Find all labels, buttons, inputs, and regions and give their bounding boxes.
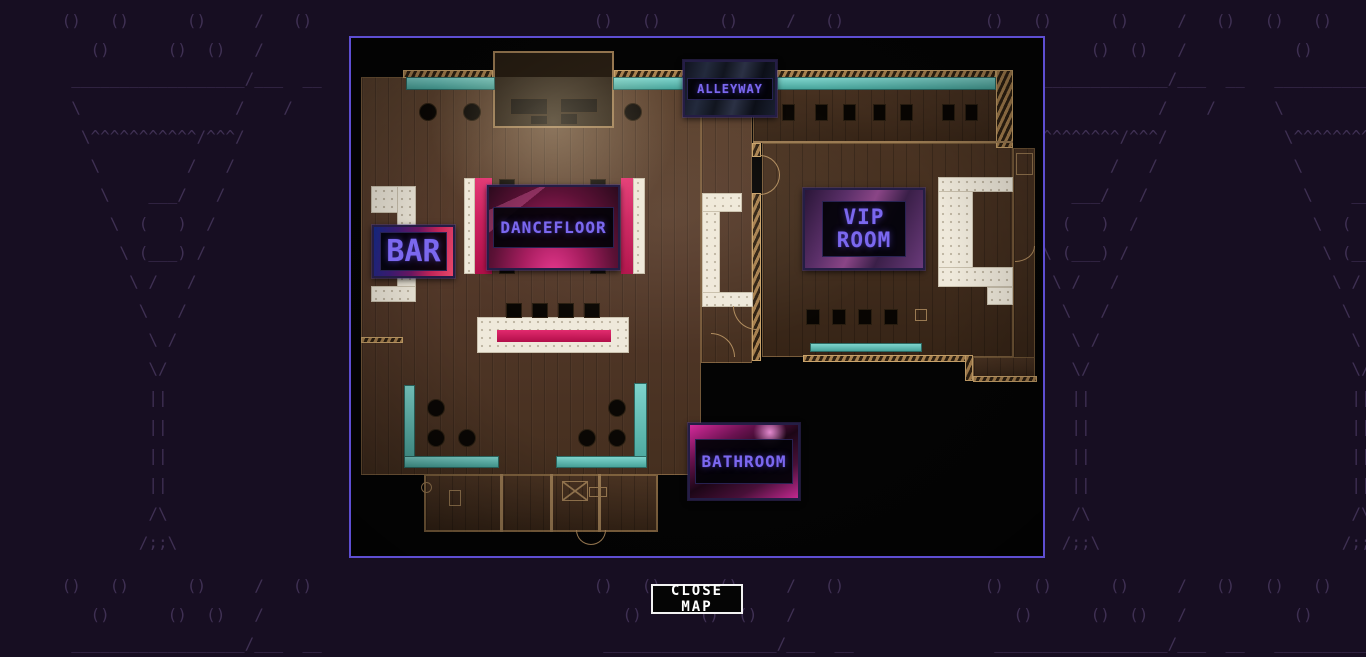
wall-white-center xyxy=(702,193,742,212)
room-card-panel: ALLEYWAY xyxy=(687,78,773,100)
stool xyxy=(532,303,548,318)
window xyxy=(942,104,955,121)
vip-seat xyxy=(884,309,898,325)
sofa-seat xyxy=(497,330,611,342)
wall-line xyxy=(550,474,553,532)
vip-fixture xyxy=(915,309,927,321)
ascii-martini-glass: () () () / () () () () / _______________… xyxy=(975,571,1245,657)
floor-vip-right-wing xyxy=(1013,148,1035,376)
room-card-dancefloor[interactable]: DANCEFLOOR xyxy=(487,185,620,270)
ascii-martini-glass: () () () / () () () () / _______________… xyxy=(1255,571,1366,657)
wall-white-center xyxy=(702,292,753,307)
door-arc xyxy=(591,530,606,545)
stool xyxy=(584,303,600,318)
neon-strip-top-left xyxy=(406,77,495,90)
back-room-fixture xyxy=(449,490,461,506)
club-map-panel: ALLEYWAY DANCEFLOOR BAR VIP ROOM BATHROO… xyxy=(349,36,1045,558)
neon-strip-top-mid xyxy=(613,77,687,90)
door-arc xyxy=(576,530,591,545)
neon-strip-alleyway xyxy=(777,77,996,90)
ascii-martini-glass: () () () / () () () () / _______________… xyxy=(1255,6,1366,557)
dancefloor-edge-right xyxy=(621,178,633,274)
wall-hatched xyxy=(803,355,969,362)
booth-table xyxy=(560,113,578,125)
wall-line xyxy=(598,474,601,532)
floor-vip-annex xyxy=(973,357,1035,378)
neon-counter-vip xyxy=(810,343,922,352)
round-table xyxy=(427,399,445,417)
wall-white-vip xyxy=(938,267,1013,287)
round-table xyxy=(578,429,596,447)
round-table xyxy=(608,429,626,447)
window xyxy=(782,104,795,121)
stool xyxy=(558,303,574,318)
room-card-alleyway[interactable]: ALLEYWAY xyxy=(683,60,777,117)
back-room-fixture xyxy=(589,487,607,497)
window xyxy=(815,104,828,121)
wall-hatched xyxy=(996,70,1013,148)
ascii-martini-glass: () () () / () () () () / _______________… xyxy=(52,6,322,557)
wall-white-dancefloor xyxy=(464,178,475,274)
door-frame xyxy=(1016,153,1033,175)
room-label-vip-line2: ROOM xyxy=(837,229,892,252)
round-table xyxy=(458,429,476,447)
floor-marker xyxy=(421,482,432,493)
wall-line xyxy=(753,141,1013,143)
wall-white-dancefloor xyxy=(633,178,645,274)
wall-line xyxy=(500,474,503,532)
round-table xyxy=(419,103,437,121)
stage-booth xyxy=(493,51,614,128)
vip-seat xyxy=(858,309,872,325)
round-table xyxy=(463,103,481,121)
room-label-bathroom: BATHROOM xyxy=(701,452,786,471)
room-label-bar: BAR xyxy=(386,234,440,269)
window xyxy=(873,104,886,121)
room-card-panel: VIP ROOM xyxy=(822,201,907,257)
room-card-panel: DANCEFLOOR xyxy=(493,207,613,248)
wall-hatched xyxy=(361,337,403,343)
wall-white-vip xyxy=(987,287,1013,305)
room-card-vip-room[interactable]: VIP ROOM xyxy=(803,188,925,270)
booth-table xyxy=(530,115,548,125)
room-label-dancefloor: DANCEFLOOR xyxy=(500,218,606,237)
room-card-panel: BAR xyxy=(380,232,446,271)
close-map-button[interactable]: CLOSE MAP xyxy=(651,584,743,614)
vip-seat xyxy=(806,309,820,325)
booth-table xyxy=(560,98,598,113)
room-card-panel: BATHROOM xyxy=(695,439,792,484)
room-label-vip-line1: VIP xyxy=(844,206,885,229)
screen: () () () / () () () () / _______________… xyxy=(0,0,1366,657)
wall-hatched xyxy=(965,355,973,381)
booth-table xyxy=(510,98,548,115)
wall-white-bar xyxy=(371,286,416,302)
window xyxy=(965,104,978,121)
round-table xyxy=(624,103,642,121)
room-card-bar[interactable]: BAR xyxy=(372,225,455,278)
ascii-martini-glass: () () () / () () () () / _______________… xyxy=(52,571,322,657)
room-label-alleyway: ALLEYWAY xyxy=(697,82,763,96)
round-table xyxy=(608,399,626,417)
room-card-bathroom[interactable]: BATHROOM xyxy=(688,423,800,500)
wall-white-vip xyxy=(938,177,1013,192)
storage-crate xyxy=(562,481,588,501)
wall-hatched xyxy=(973,376,1037,382)
booth-counter-right xyxy=(556,456,647,468)
window xyxy=(843,104,856,121)
window xyxy=(900,104,913,121)
stool xyxy=(506,303,522,318)
booth-counter-left xyxy=(404,456,499,468)
wall-hatched xyxy=(752,193,761,361)
round-table xyxy=(427,429,445,447)
vip-seat xyxy=(832,309,846,325)
